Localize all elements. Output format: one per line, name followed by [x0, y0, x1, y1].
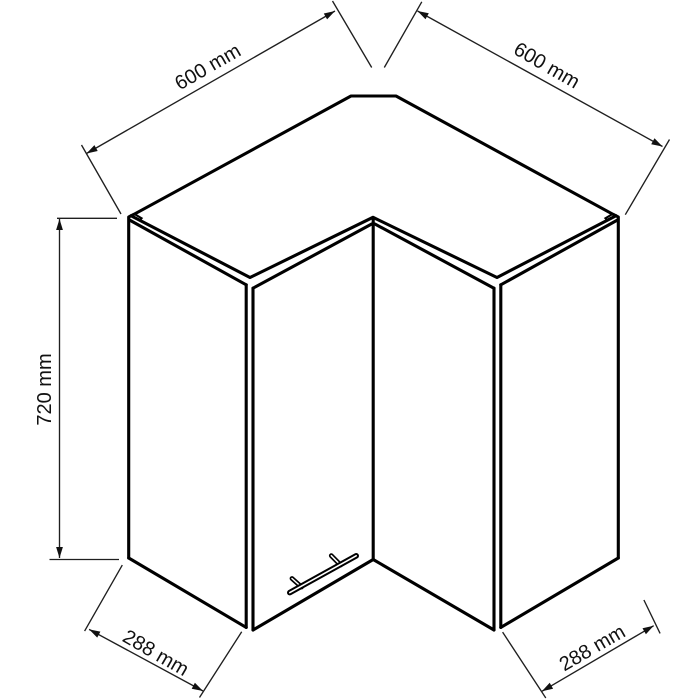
- svg-text:720 mm: 720 mm: [34, 353, 56, 425]
